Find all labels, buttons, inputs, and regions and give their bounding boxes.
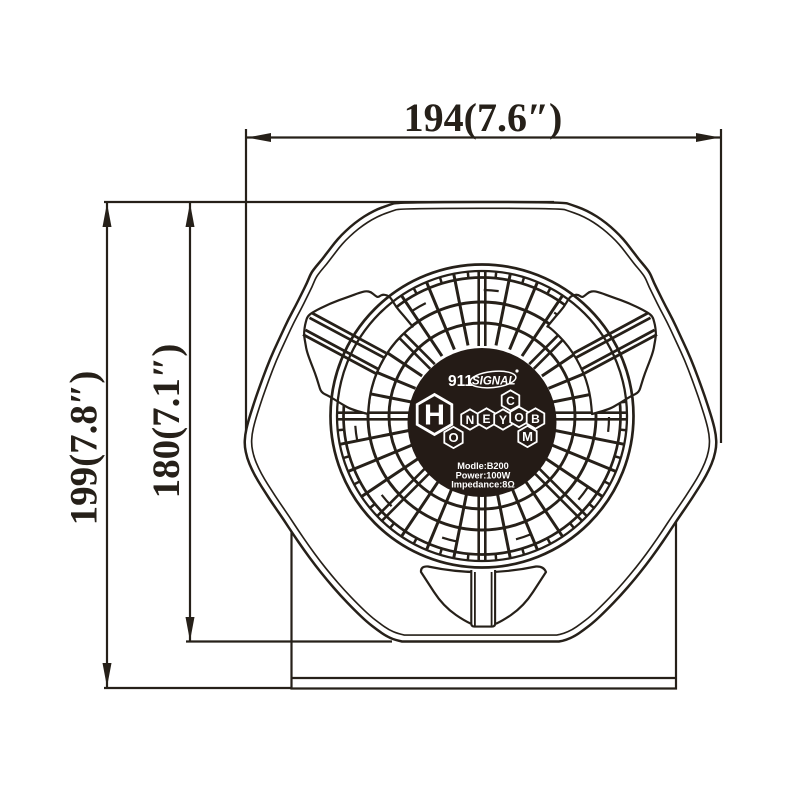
svg-text:E: E (482, 412, 490, 426)
svg-text:B: B (531, 412, 540, 426)
svg-text:199(7.8″): 199(7.8″) (63, 371, 106, 526)
svg-text:M: M (522, 429, 533, 444)
svg-text:SIGNAL: SIGNAL (472, 376, 515, 388)
svg-text:Y: Y (499, 413, 507, 427)
svg-text:N: N (466, 413, 475, 427)
svg-text:Impedance:8Ω: Impedance:8Ω (451, 480, 515, 490)
svg-text:H: H (424, 400, 445, 432)
svg-text:O: O (448, 430, 458, 445)
svg-text:194(7.6″): 194(7.6″) (404, 95, 563, 140)
svg-text:O: O (514, 410, 523, 424)
svg-text:Modle:B200: Modle:B200 (457, 461, 509, 471)
svg-text:180(7.1″): 180(7.1″) (145, 344, 188, 499)
svg-text:C: C (506, 394, 515, 408)
